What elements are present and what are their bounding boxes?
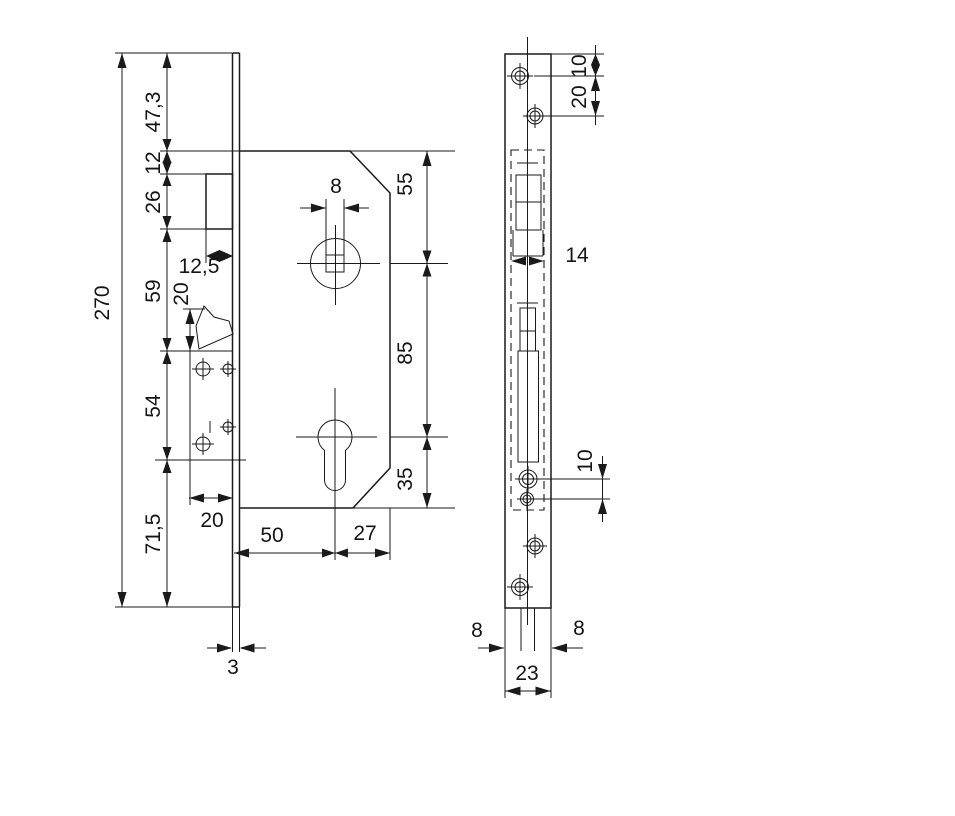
faceplate-dimensions: 10 20 14 10 8 8 23: [471, 45, 610, 698]
faceplate-edge: [233, 53, 240, 607]
dim-seg-lower: 54: [142, 394, 165, 418]
dim-case-depth-ext: 27: [353, 522, 376, 545]
lock-case-outline: [240, 151, 391, 508]
dim-spindle-to-cylinder: 85: [394, 341, 417, 364]
fixing-holes-side: [192, 358, 236, 455]
faceplate-front-view: [505, 37, 551, 625]
dim-cylinder-to-bottom: 35: [394, 467, 417, 490]
dim-spindle-square: 8: [330, 175, 342, 198]
dim-seg-latch: 26: [142, 190, 165, 213]
dim-overall-height: 270: [91, 285, 114, 320]
deadbolt-front: [518, 308, 539, 462]
latch-bevel: [196, 306, 233, 349]
dim-seg-bottom: 71,5: [142, 514, 165, 555]
dim-backset: 50: [260, 524, 283, 547]
dim-seg-mid: 59: [142, 279, 165, 302]
dim-aux-offset: 20: [200, 509, 223, 532]
dim-faceplate-thickness: 3: [227, 656, 239, 679]
dim-edge-offset-left: 8: [471, 619, 483, 642]
dim-screw-hole-spacing: 20: [568, 85, 591, 108]
dim-seg-latch-offset: 12: [142, 151, 165, 174]
lock-technical-drawing: 270 47,3 12 26 59 54 71,5 20 12,5 8: [0, 0, 955, 816]
dim-cylinder-hole-spacing: 10: [574, 449, 597, 472]
dim-latch-protrusion: 12,5: [179, 255, 220, 278]
drawing-svg: 270 47,3 12 26 59 54 71,5 20 12,5 8: [0, 0, 955, 816]
dim-mortise-width: 14: [565, 244, 589, 267]
dim-edge-offset-right: 8: [573, 617, 585, 640]
dim-top-to-spindle: 55: [394, 172, 417, 195]
dim-seg-top: 47,3: [142, 92, 165, 133]
spindle-follower: [297, 225, 380, 305]
dim-latch-bevel-height: 20: [170, 282, 193, 305]
side-view-dimensions: 270 47,3 12 26 59 54 71,5 20 12,5 8: [91, 53, 455, 679]
dim-faceplate-width: 23: [515, 662, 538, 685]
latch-protrusion: [206, 174, 233, 229]
dim-plate-top-to-hole: 10: [568, 54, 591, 77]
